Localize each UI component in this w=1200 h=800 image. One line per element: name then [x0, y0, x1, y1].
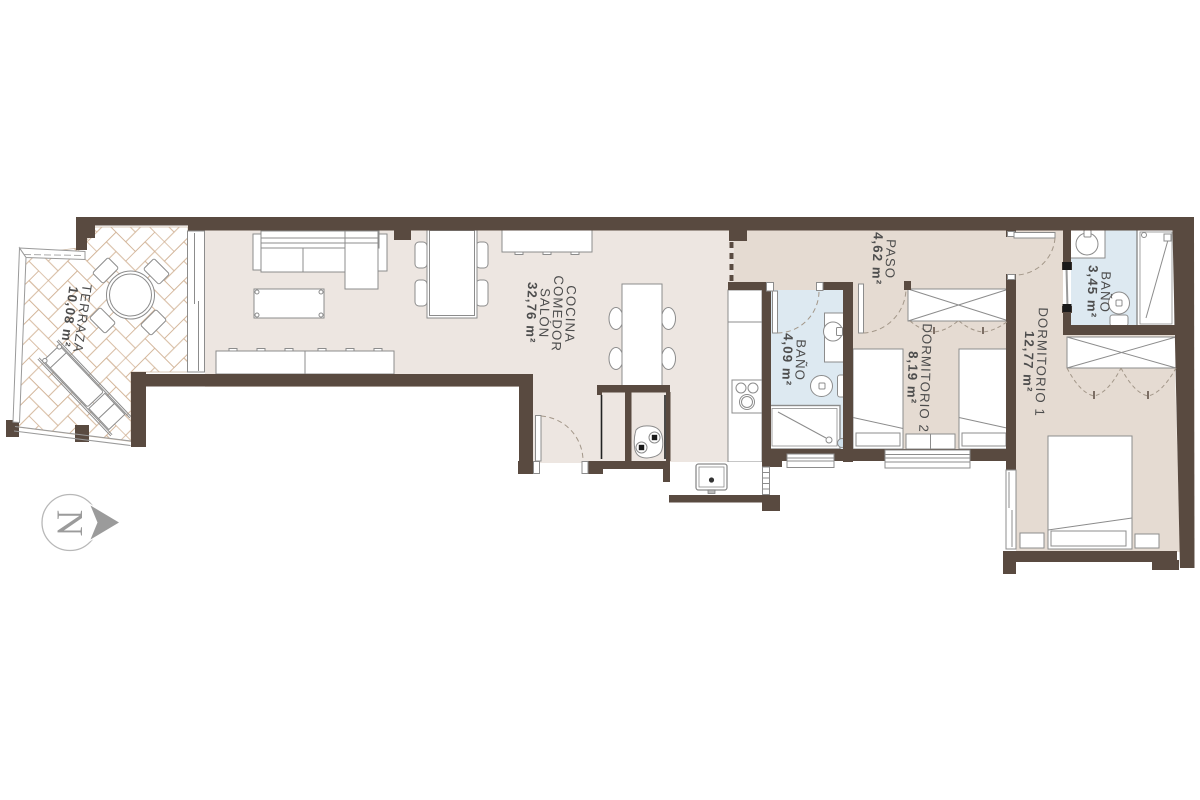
svg-text:N: N [49, 510, 90, 537]
svg-text:12,77 m²: 12,77 m² [1020, 331, 1037, 393]
svg-text:8,19 m²: 8,19 m² [904, 351, 921, 405]
svg-text:3,45 m²: 3,45 m² [1084, 265, 1101, 319]
svg-text:32,76 m²: 32,76 m² [523, 282, 540, 344]
svg-text:4,62 m²: 4,62 m² [869, 232, 886, 286]
svg-text:4,09 m²: 4,09 m² [779, 333, 796, 387]
